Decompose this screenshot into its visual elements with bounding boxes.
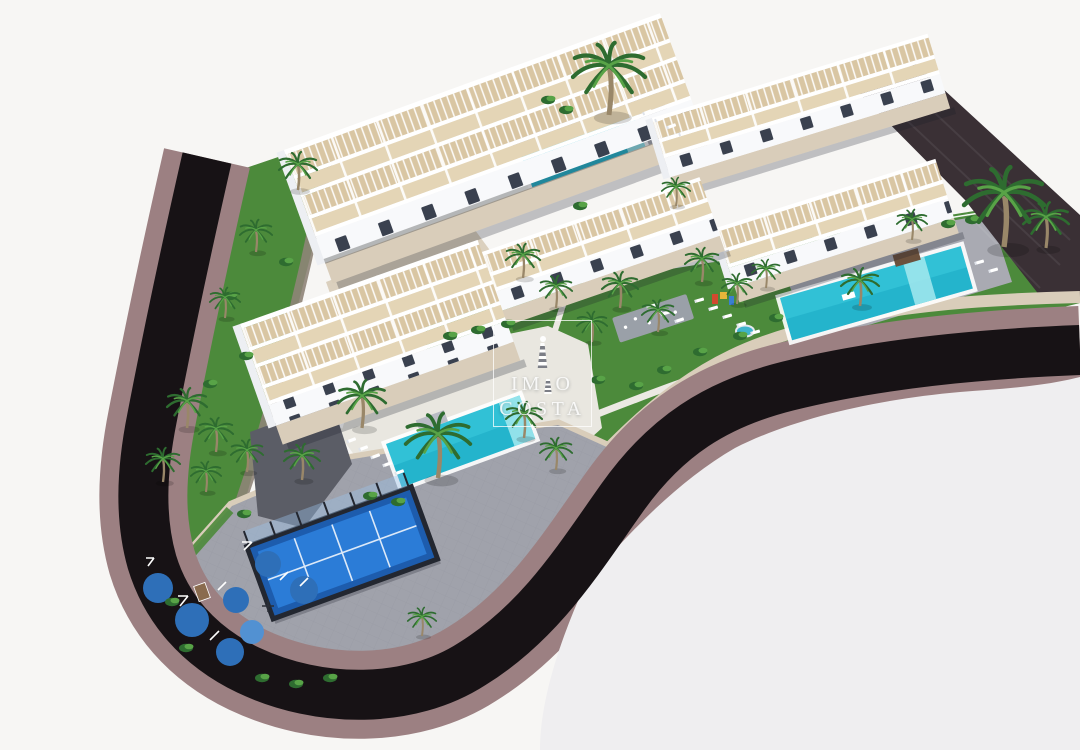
watermark-text-left: IM	[511, 374, 543, 394]
lighthouse-lamp	[540, 336, 546, 342]
play-roof-yellow	[720, 292, 727, 299]
rubber-pad	[290, 576, 318, 604]
rubber-pad	[175, 603, 209, 637]
rubber-pad	[240, 620, 264, 644]
watermark: IM O COSTA	[493, 320, 592, 427]
lighthouse-tower	[536, 343, 550, 368]
watermark-line1: IM O	[511, 374, 574, 394]
watermark-text-right: O	[556, 374, 574, 394]
watermark-line2: COSTA	[499, 397, 585, 421]
play-tower-red	[712, 294, 718, 304]
lighthouse-icon	[536, 336, 550, 368]
rubber-pad	[216, 638, 244, 666]
render-canvas: IM O COSTA	[0, 0, 1080, 750]
lighthouse-glyph-icon	[544, 379, 553, 394]
rubber-pad	[223, 587, 249, 613]
rubber-pad	[255, 551, 281, 577]
